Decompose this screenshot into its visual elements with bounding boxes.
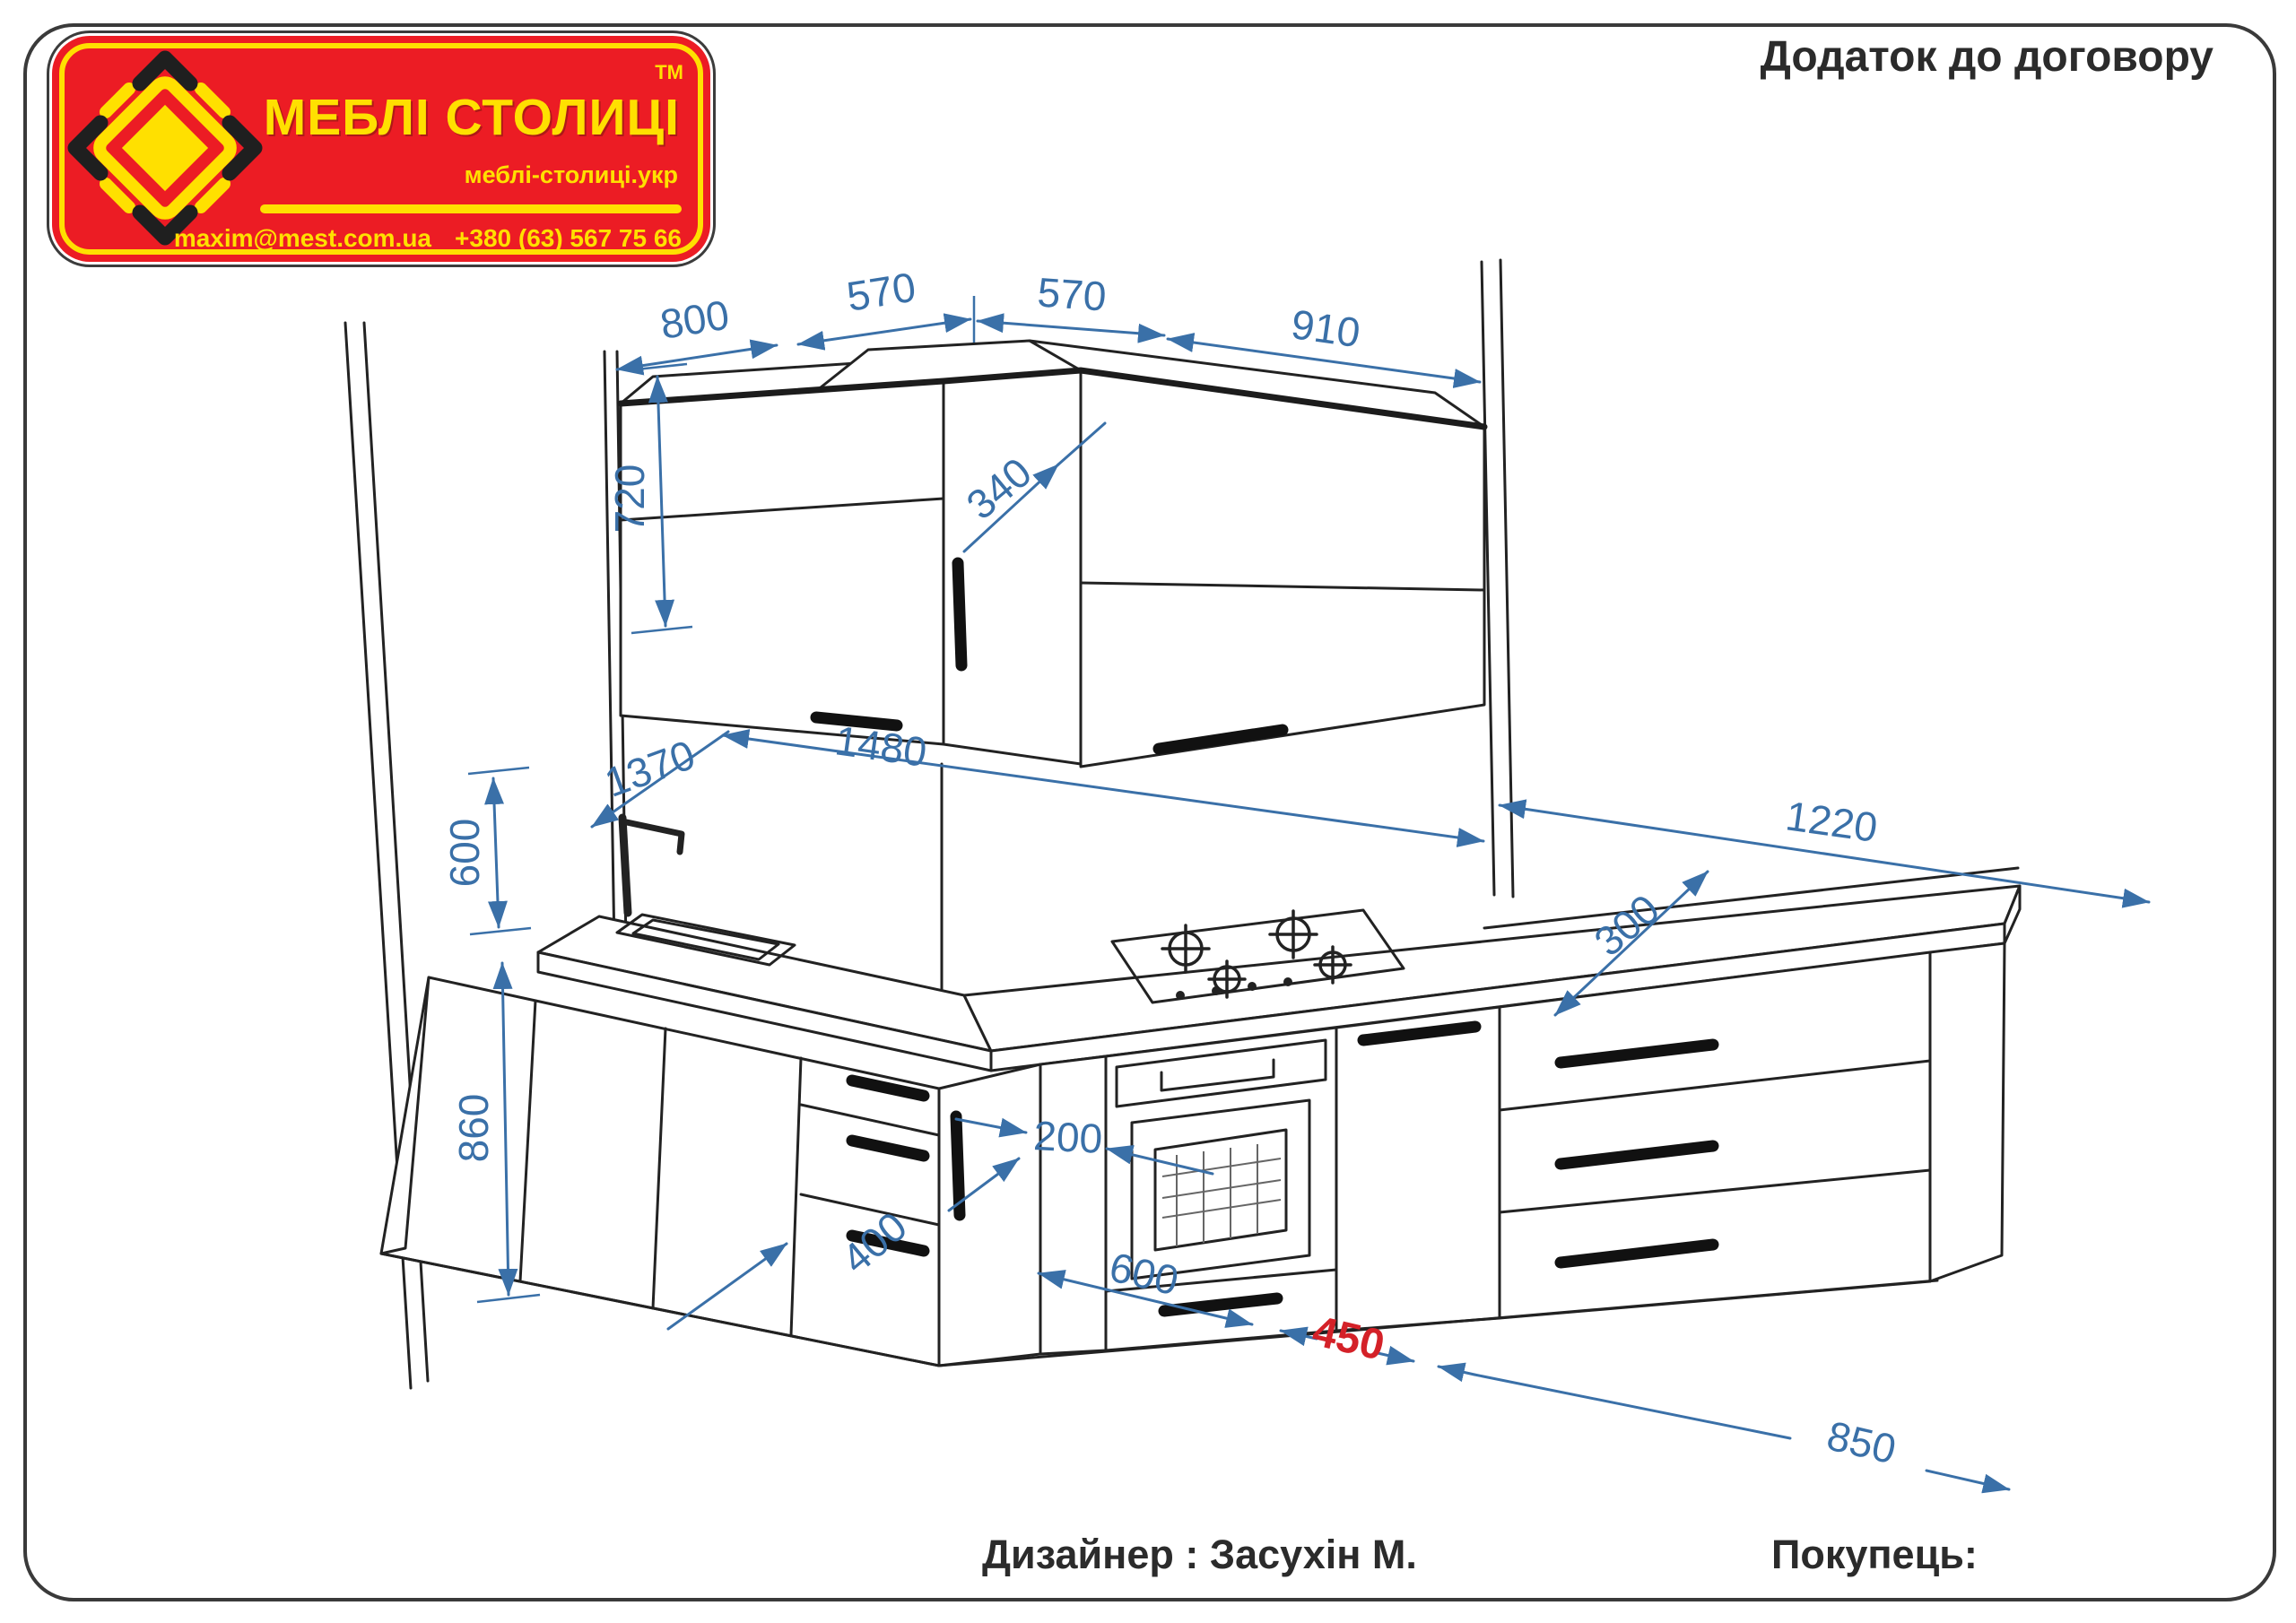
dimension-label-910: 910 (1289, 300, 1363, 356)
dimension-label-570-right: 570 (1036, 268, 1108, 319)
dimension-1220: 1220 (1500, 792, 2149, 902)
dimension-800: 800 (617, 291, 777, 369)
corner-cabinet-door (944, 370, 1081, 764)
dimension-850: 850 (1439, 1367, 2009, 1489)
highlight-door (1336, 1007, 1500, 1331)
dimension-label-200: 200 (1032, 1112, 1103, 1162)
dimension-label-600-backsplash: 600 (441, 819, 488, 888)
dimension-1370: 1370 (592, 731, 728, 827)
contract-appendix-sheet: { "header": { "title": "Додаток до догов… (0, 0, 2296, 1623)
left-wall-cabinet-face (621, 381, 944, 744)
corner-cabinet-handle (958, 563, 961, 665)
dimension-label-850: 850 (1822, 1411, 1900, 1472)
right-side-panel (1930, 943, 2005, 1281)
dimension-label-1370: 1370 (599, 731, 701, 806)
corner-base-handle (956, 1116, 960, 1215)
right-wall-cabinet-face (1081, 370, 1484, 767)
dimension-570-right: 570 (978, 268, 1164, 335)
faucet-icon (622, 818, 628, 913)
wall-cabinets (621, 341, 1484, 767)
dimension-label-800: 800 (657, 291, 733, 348)
dimension-label-720: 720 (606, 464, 653, 534)
dimension-label-860: 860 (450, 1094, 497, 1163)
dimension-570-left: 570 (798, 264, 974, 344)
filler-panel (1040, 1056, 1106, 1354)
corner-base (939, 1056, 1106, 1366)
dimension-600-backsplash: 600 (441, 768, 531, 934)
dimension-label-570-left: 570 (844, 264, 919, 320)
kitchen-drawing: 800 570 570 910 340 720 600 (0, 0, 2296, 1623)
oven-cabinet (1106, 1028, 1336, 1350)
dimension-label-1220: 1220 (1783, 792, 1881, 851)
